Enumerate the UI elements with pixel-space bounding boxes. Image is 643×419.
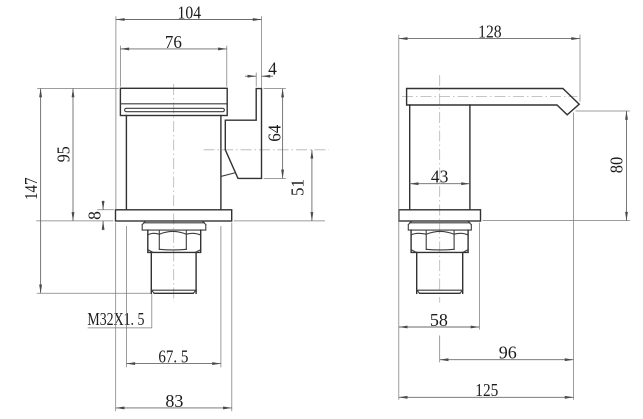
svg-text:67. 5: 67. 5 <box>158 346 188 366</box>
svg-text:125: 125 <box>475 380 498 400</box>
svg-text:4: 4 <box>268 59 277 79</box>
svg-text:96: 96 <box>499 342 517 362</box>
svg-text:95: 95 <box>53 146 73 162</box>
svg-text:147: 147 <box>21 177 41 200</box>
svg-text:64: 64 <box>265 124 285 141</box>
svg-text:51: 51 <box>288 179 308 196</box>
svg-text:8: 8 <box>85 211 105 220</box>
svg-text:43: 43 <box>431 167 449 187</box>
svg-text:104: 104 <box>178 2 202 22</box>
svg-text:76: 76 <box>165 32 182 52</box>
svg-text:58: 58 <box>430 310 448 330</box>
svg-text:80: 80 <box>607 157 627 174</box>
svg-text:128: 128 <box>478 21 502 41</box>
svg-text:83: 83 <box>165 391 183 411</box>
